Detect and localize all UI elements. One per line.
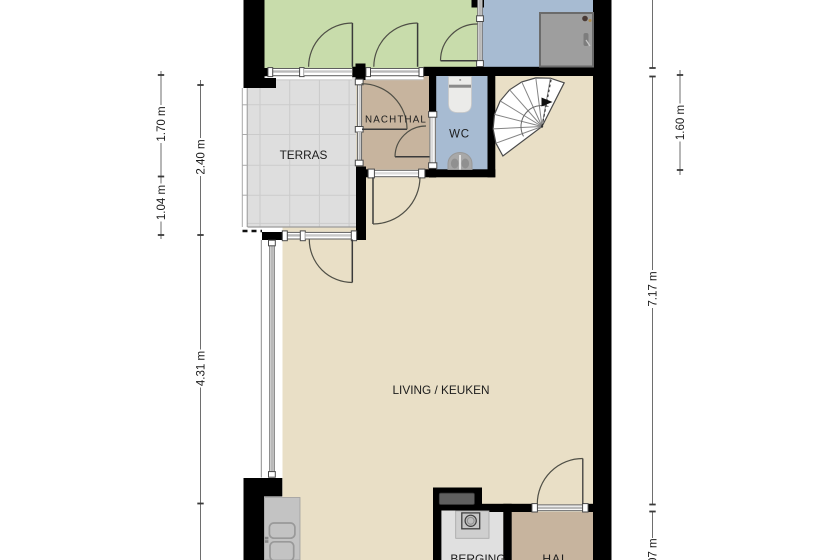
svg-text:HAL: HAL [542, 552, 568, 560]
svg-text:NACHTHAL: NACHTHAL [365, 115, 427, 126]
svg-text:WC: WC [449, 128, 470, 140]
svg-text:1.04 m: 1.04 m [156, 185, 168, 220]
svg-text:BERGING: BERGING [450, 552, 505, 560]
svg-text:LIVING / KEUKEN: LIVING / KEUKEN [392, 383, 489, 397]
svg-text:TERRAS: TERRAS [280, 148, 328, 162]
svg-text:1.70 m: 1.70 m [156, 106, 168, 141]
svg-text:1.60 m: 1.60 m [675, 105, 687, 140]
svg-text:7.17 m: 7.17 m [648, 271, 660, 306]
svg-text:1.07 m: 1.07 m [648, 538, 660, 560]
svg-text:2.40 m: 2.40 m [196, 139, 208, 174]
svg-text:4.31 m: 4.31 m [196, 351, 208, 386]
